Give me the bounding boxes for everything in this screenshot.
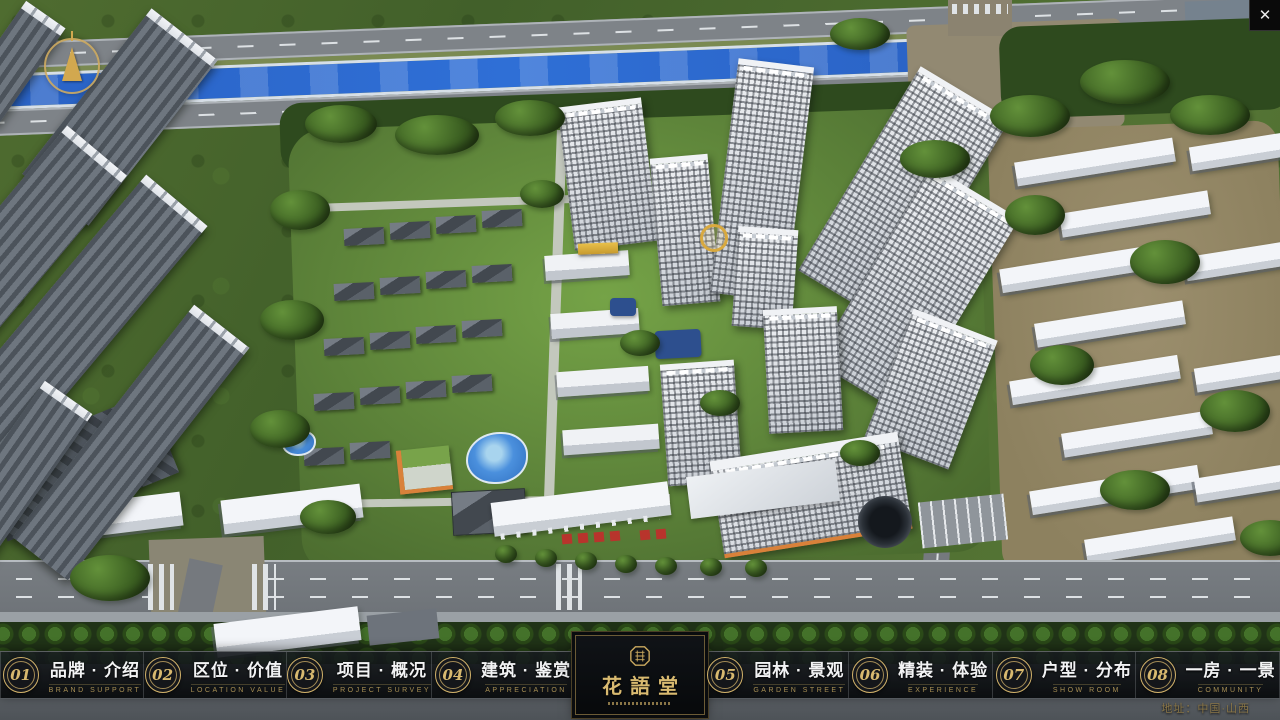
nav-sublabel: PROJECT SURVEY bbox=[333, 684, 431, 694]
courtyard-house bbox=[350, 441, 391, 460]
blue-garden bbox=[610, 298, 636, 316]
courtyard-house bbox=[452, 374, 493, 393]
fountain bbox=[700, 224, 728, 252]
tree-cluster bbox=[990, 95, 1070, 137]
courtyard-house bbox=[344, 227, 385, 246]
compass-icon bbox=[44, 38, 100, 94]
nav-item-interior[interactable]: 06 精装 · 体验 EXPERIENCE bbox=[849, 652, 993, 698]
logo-title: 花語堂 bbox=[594, 670, 686, 699]
tree-cluster bbox=[615, 555, 637, 573]
tree-cluster bbox=[270, 190, 330, 230]
tree-cluster bbox=[495, 100, 565, 136]
nav-badge: 07 bbox=[996, 657, 1032, 693]
plaza-circle bbox=[858, 496, 912, 548]
tree-cluster bbox=[1130, 240, 1200, 284]
courtyard-house bbox=[462, 319, 503, 338]
nav-number: 03 bbox=[294, 666, 315, 684]
nav-number: 02 bbox=[152, 666, 173, 684]
red-gate bbox=[610, 531, 621, 542]
tower bbox=[763, 306, 843, 434]
nav-number: 05 bbox=[715, 666, 736, 684]
nav-sublabel: BRAND SUPPORT bbox=[49, 684, 142, 694]
courtyard-house bbox=[360, 386, 401, 405]
courtyard-house bbox=[380, 276, 421, 295]
nav-item-brand[interactable]: 01 品牌 · 介绍 BRAND SUPPORT bbox=[0, 652, 144, 698]
nav-item-location[interactable]: 02 区位 · 价值 LOCATION VALUE bbox=[144, 652, 287, 698]
nav-text: 项目 · 概况 PROJECT SURVEY bbox=[333, 656, 431, 694]
courtyard-house bbox=[426, 270, 467, 289]
nav-sublabel: COMMUNITY bbox=[1198, 684, 1264, 694]
nav-label: 项目 · 概况 bbox=[337, 656, 427, 681]
tree-cluster bbox=[840, 440, 880, 466]
tree-cluster bbox=[495, 545, 517, 563]
nav-number: 01 bbox=[10, 666, 31, 684]
nav-label: 区位 · 价值 bbox=[193, 656, 283, 681]
nav-item-floorplan[interactable]: 07 户型 · 分布 SHOW ROOM bbox=[993, 652, 1137, 698]
bottom-nav-bar: 01 品牌 · 介绍 BRAND SUPPORT 02 区位 · 价值 LOCA… bbox=[0, 651, 1280, 699]
courtyard-house bbox=[314, 392, 355, 411]
tree-cluster bbox=[700, 558, 722, 576]
nav-text: 建筑 · 鉴赏 APPRECIATION bbox=[481, 656, 571, 694]
nav-text: 精装 · 体验 EXPERIENCE bbox=[898, 656, 988, 694]
tree-cluster bbox=[1080, 60, 1170, 104]
tree-cluster bbox=[70, 555, 150, 601]
nav-text: 一房 · 一景 COMMUNITY bbox=[1186, 656, 1276, 694]
compass-needle bbox=[62, 47, 82, 81]
tree-cluster bbox=[1170, 95, 1250, 135]
nav-group-right: 05 园林 · 景观 GARDEN STREET 06 精装 · 体验 EXPE… bbox=[705, 652, 1280, 698]
nav-number: 07 bbox=[1003, 666, 1024, 684]
tree-cluster bbox=[900, 140, 970, 178]
courtyard-house bbox=[370, 331, 411, 350]
tree-cluster bbox=[830, 18, 890, 50]
crosswalk bbox=[952, 4, 1008, 14]
nav-label: 建筑 · 鉴赏 bbox=[481, 656, 571, 681]
nav-label: 户型 · 分布 bbox=[1042, 656, 1132, 681]
courtyard-house bbox=[482, 209, 523, 228]
nav-text: 园林 · 景观 GARDEN STREET bbox=[753, 656, 845, 694]
nav-sublabel: GARDEN STREET bbox=[753, 684, 845, 694]
nav-sublabel: LOCATION VALUE bbox=[191, 684, 286, 694]
tree-cluster bbox=[620, 330, 660, 356]
nav-label: 精装 · 体验 bbox=[898, 656, 988, 681]
nav-text: 区位 · 价值 LOCATION VALUE bbox=[191, 656, 286, 694]
tree-cluster bbox=[260, 300, 324, 340]
nav-badge: 06 bbox=[852, 657, 888, 693]
tree-cluster bbox=[305, 105, 377, 143]
tree-cluster bbox=[1200, 390, 1270, 432]
red-gate bbox=[656, 529, 667, 540]
crosswalk bbox=[252, 564, 276, 610]
logo-tagline bbox=[608, 702, 672, 705]
nav-sublabel: APPRECIATION bbox=[485, 684, 567, 694]
nav-label: 一房 · 一景 bbox=[1186, 656, 1276, 681]
nav-group-left: 01 品牌 · 介绍 BRAND SUPPORT 02 区位 · 价值 LOCA… bbox=[0, 652, 575, 698]
tree-cluster bbox=[575, 552, 597, 570]
north-road bbox=[948, 0, 1012, 36]
nav-number: 06 bbox=[860, 666, 881, 684]
red-gate bbox=[594, 532, 605, 543]
nav-text: 品牌 · 介绍 BRAND SUPPORT bbox=[49, 656, 142, 694]
courtyard-house bbox=[436, 215, 477, 234]
nav-text: 户型 · 分布 SHOW ROOM bbox=[1042, 656, 1132, 694]
courtyard-house bbox=[406, 380, 447, 399]
tree-cluster bbox=[520, 180, 564, 208]
courtyard-house bbox=[472, 264, 513, 283]
tree-cluster bbox=[535, 549, 557, 567]
nav-sublabel: EXPERIENCE bbox=[908, 684, 978, 694]
tree-cluster bbox=[655, 557, 677, 575]
courtyard-house bbox=[390, 221, 431, 240]
nav-badge: 01 bbox=[3, 657, 39, 693]
nav-item-architecture[interactable]: 04 建筑 · 鉴赏 APPRECIATION bbox=[432, 652, 575, 698]
nav-item-views[interactable]: 08 一房 · 一景 COMMUNITY bbox=[1136, 652, 1280, 698]
presentation-window: ✕ 01 品牌 · 介绍 BRAND SUPPORT 02 区位 · 价值 LO… bbox=[0, 0, 1280, 720]
project-logo[interactable]: 花語堂 bbox=[575, 635, 705, 715]
nav-label: 园林 · 景观 bbox=[754, 656, 844, 681]
tree-cluster bbox=[1005, 195, 1065, 235]
parking-lot bbox=[918, 494, 1008, 549]
tree-cluster bbox=[1030, 345, 1094, 385]
red-gate bbox=[578, 533, 589, 544]
nav-label: 品牌 · 介绍 bbox=[50, 656, 140, 681]
tree-cluster bbox=[395, 115, 479, 155]
shuttle-bus bbox=[578, 242, 618, 254]
crosswalk bbox=[148, 564, 174, 610]
nav-number: 04 bbox=[443, 666, 464, 684]
tree-cluster bbox=[300, 500, 356, 534]
nav-number: 08 bbox=[1147, 666, 1168, 684]
nav-badge: 03 bbox=[287, 657, 323, 693]
nav-badge: 05 bbox=[707, 657, 743, 693]
courtyard-house bbox=[334, 282, 375, 301]
tree-cluster bbox=[745, 559, 767, 577]
nav-badge: 02 bbox=[145, 657, 181, 693]
tree-cluster bbox=[700, 390, 740, 416]
tree-cluster bbox=[1100, 470, 1170, 510]
nav-sublabel: SHOW ROOM bbox=[1053, 684, 1121, 694]
nav-badge: 08 bbox=[1140, 657, 1176, 693]
courtyard-house bbox=[324, 337, 365, 356]
tower bbox=[558, 97, 659, 250]
nav-item-project[interactable]: 03 项目 · 概况 PROJECT SURVEY bbox=[287, 652, 432, 698]
red-gate bbox=[640, 530, 651, 541]
courtyard-house bbox=[416, 325, 457, 344]
compass-north-tick bbox=[71, 31, 73, 41]
crosswalk bbox=[556, 564, 582, 610]
blue-garden bbox=[654, 329, 701, 359]
kindergarten-building bbox=[396, 445, 453, 494]
nav-item-garden[interactable]: 05 园林 · 景观 GARDEN STREET bbox=[705, 652, 849, 698]
close-button[interactable]: ✕ bbox=[1249, 0, 1280, 31]
project-address: 地址：中国·山西 bbox=[1161, 700, 1250, 716]
logo-seal-icon bbox=[629, 645, 651, 667]
aerial-site-map[interactable] bbox=[0, 0, 1280, 720]
red-gate bbox=[562, 534, 573, 545]
nav-badge: 04 bbox=[435, 657, 471, 693]
tree-cluster bbox=[250, 410, 310, 448]
